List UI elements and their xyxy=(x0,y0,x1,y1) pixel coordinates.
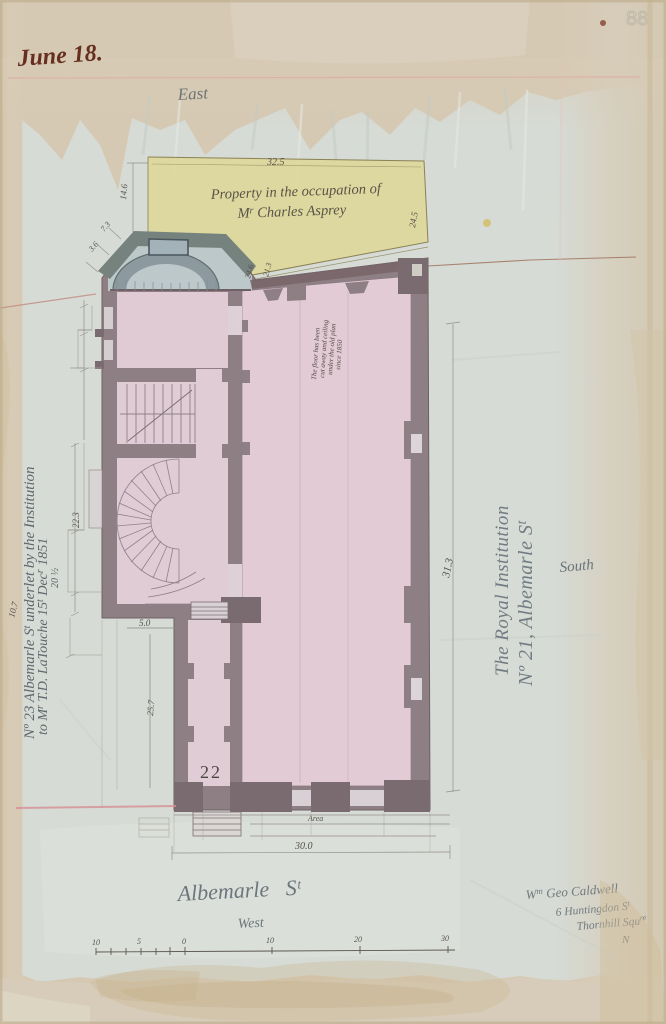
svg-text:10: 10 xyxy=(92,938,100,947)
svg-text:14.6: 14.6 xyxy=(118,183,129,200)
svg-text:5.0: 5.0 xyxy=(139,618,151,628)
svg-text:South: South xyxy=(559,557,594,576)
svg-text:Area: Area xyxy=(307,814,323,823)
svg-text:West: West xyxy=(237,916,265,932)
svg-text:88: 88 xyxy=(626,8,648,30)
svg-text:5: 5 xyxy=(137,937,141,946)
svg-text:East: East xyxy=(176,83,209,104)
svg-text:32.5: 32.5 xyxy=(266,157,285,168)
svg-text:30: 30 xyxy=(440,934,449,943)
svg-text:to Mr T.D. LaTouche 15t Decr 1: to Mr T.D. LaTouche 15t Decr 1851 xyxy=(35,538,51,735)
svg-text:25.7: 25.7 xyxy=(145,699,156,716)
svg-text:22.3: 22.3 xyxy=(71,512,81,528)
svg-text:The Royal Institution: The Royal Institution xyxy=(492,505,513,676)
svg-text:30.0: 30.0 xyxy=(294,841,313,852)
svg-text:20 ½: 20 ½ xyxy=(50,568,61,589)
svg-text:0: 0 xyxy=(182,937,186,946)
svg-text:Nº 21, Albemarle St: Nº 21, Albemarle St xyxy=(515,520,537,688)
svg-text:20: 20 xyxy=(354,935,362,944)
svg-text:22: 22 xyxy=(200,762,222,782)
svg-text:10: 10 xyxy=(266,936,274,945)
